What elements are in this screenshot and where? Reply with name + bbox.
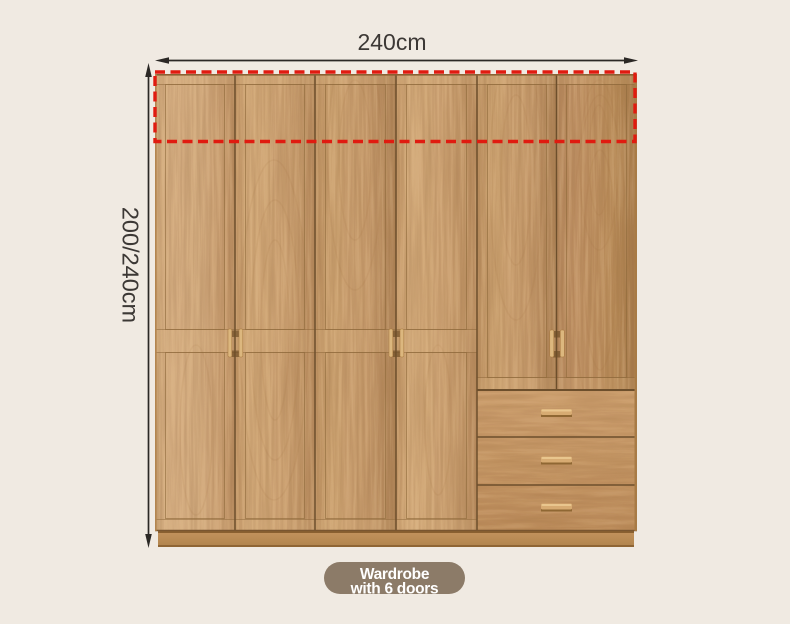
svg-text:with 6 doors: with 6 doors: [350, 581, 439, 598]
svg-text:200/240cm: 200/240cm: [118, 207, 144, 323]
svg-text:240cm: 240cm: [357, 29, 426, 55]
